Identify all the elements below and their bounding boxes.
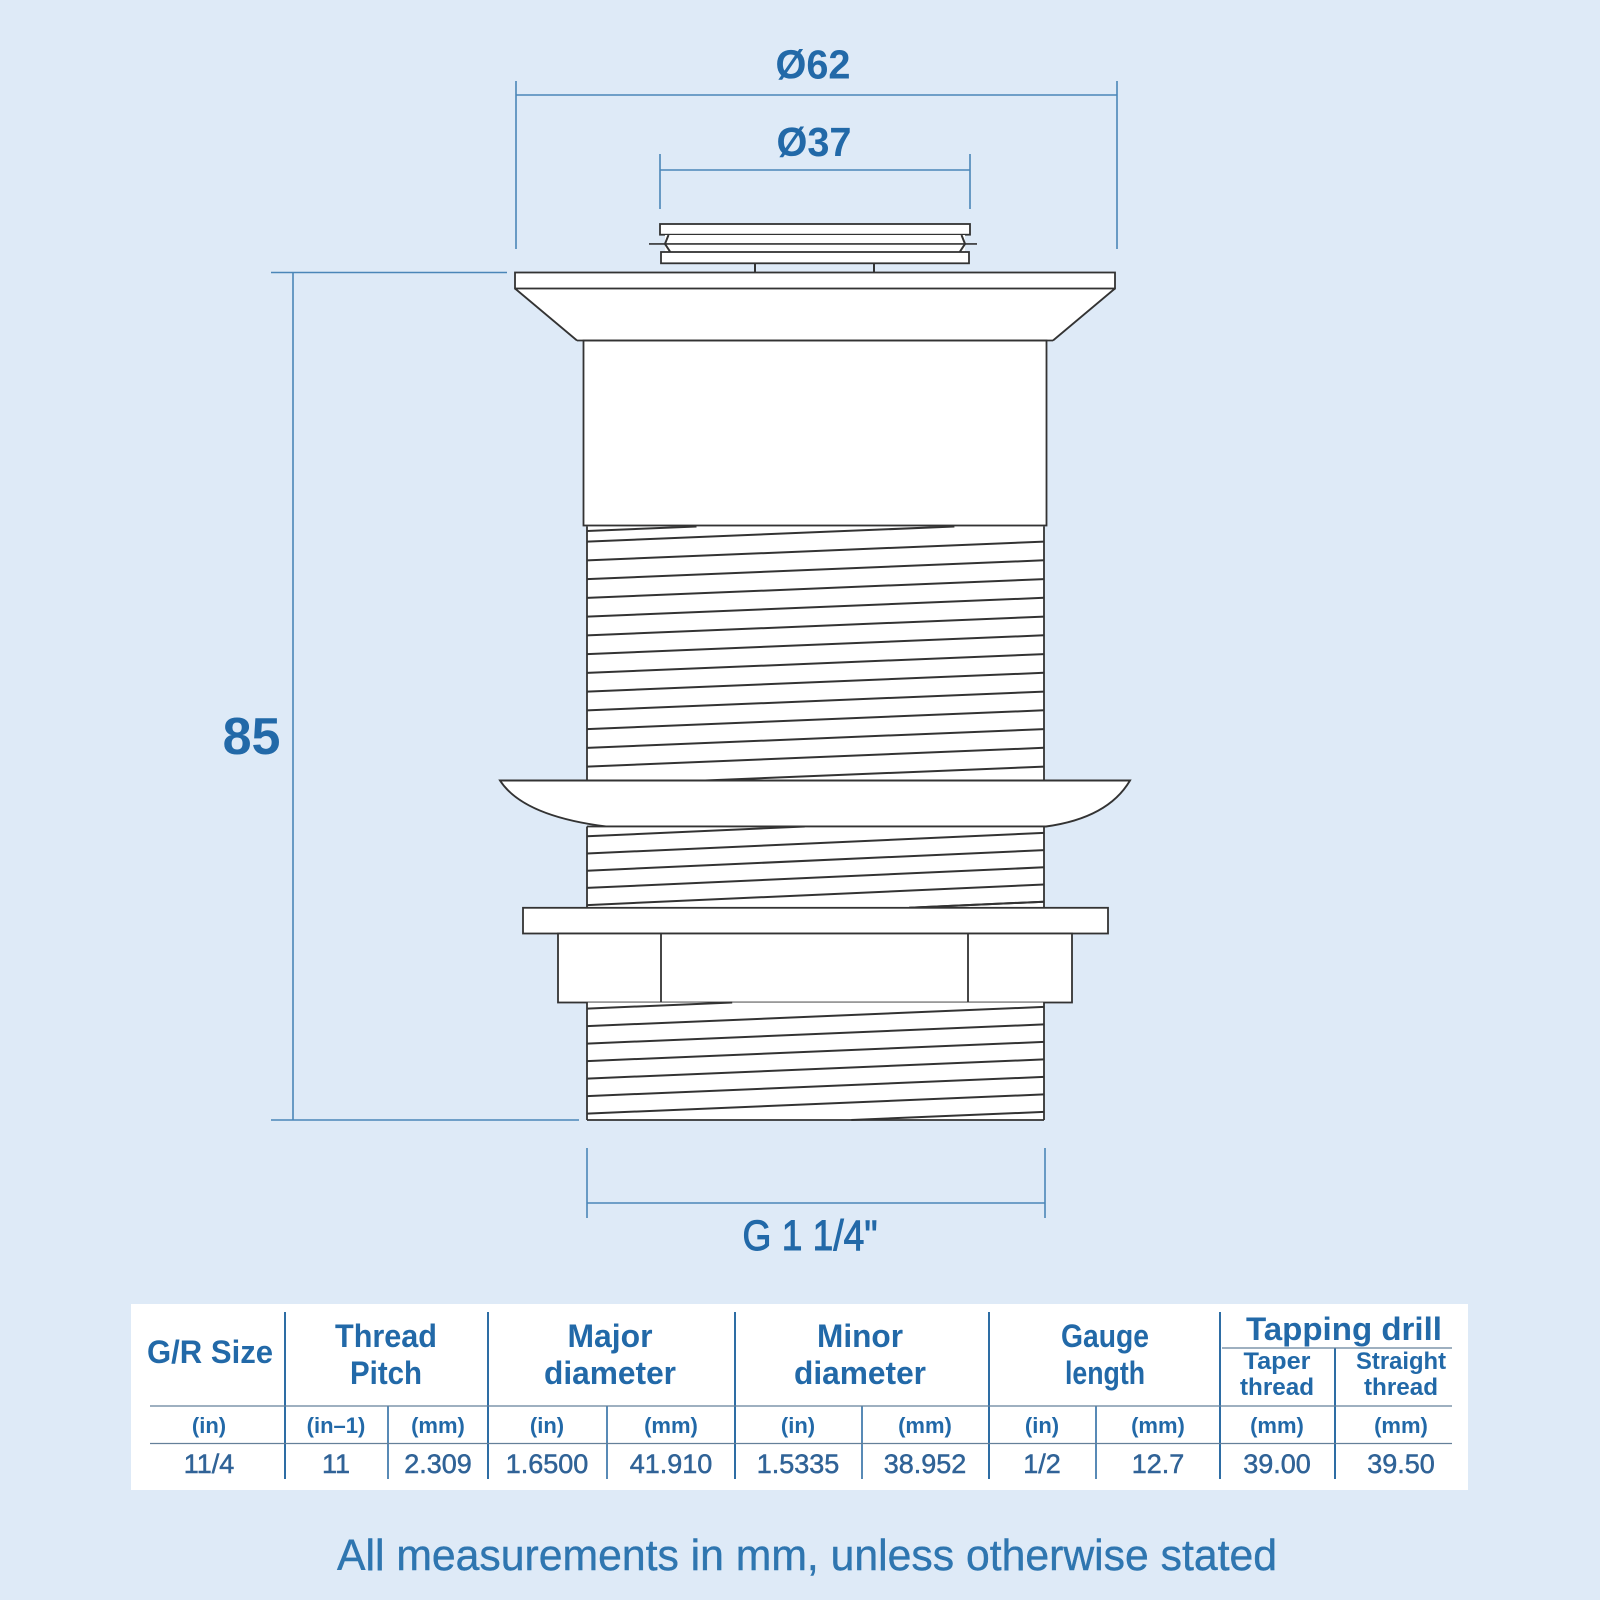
svg-text:39.00: 39.00 <box>1243 1449 1311 1479</box>
svg-text:38.952: 38.952 <box>884 1449 967 1479</box>
svg-text:Minor: Minor <box>817 1318 903 1354</box>
svg-text:Pitch: Pitch <box>350 1355 422 1391</box>
svg-text:(in): (in) <box>192 1413 226 1438</box>
svg-text:41.910: 41.910 <box>630 1449 713 1479</box>
svg-text:thread: thread <box>1364 1374 1438 1401</box>
svg-text:39.50: 39.50 <box>1367 1449 1435 1479</box>
svg-text:Thread: Thread <box>335 1318 437 1354</box>
svg-text:Ø37: Ø37 <box>777 119 852 165</box>
svg-text:(mm): (mm) <box>1374 1413 1428 1438</box>
svg-text:Ø62: Ø62 <box>776 41 851 87</box>
svg-text:1.6500: 1.6500 <box>506 1449 589 1479</box>
svg-text:(in–1): (in–1) <box>307 1413 366 1438</box>
svg-text:G/R Size: G/R Size <box>147 1334 273 1370</box>
svg-text:(mm): (mm) <box>411 1413 465 1438</box>
svg-text:12.7: 12.7 <box>1132 1449 1185 1479</box>
svg-text:(in): (in) <box>1025 1413 1059 1438</box>
svg-text:All measurements in mm, unless: All measurements in mm, unless otherwise… <box>337 1531 1277 1580</box>
svg-text:11/4: 11/4 <box>184 1449 235 1479</box>
svg-text:1.5335: 1.5335 <box>757 1449 840 1479</box>
svg-text:1/2: 1/2 <box>1023 1449 1061 1479</box>
svg-text:Major: Major <box>568 1318 653 1354</box>
svg-text:Straight: Straight <box>1356 1348 1446 1375</box>
svg-text:(in): (in) <box>530 1413 564 1438</box>
svg-text:11: 11 <box>322 1449 350 1479</box>
svg-text:85: 85 <box>223 708 281 766</box>
svg-text:(mm): (mm) <box>1131 1413 1185 1438</box>
svg-text:diameter: diameter <box>544 1355 676 1391</box>
svg-text:length: length <box>1065 1355 1145 1391</box>
svg-text:(mm): (mm) <box>644 1413 698 1438</box>
svg-text:G 1 1/4": G 1 1/4" <box>743 1212 878 1260</box>
svg-text:(in): (in) <box>781 1413 815 1438</box>
svg-text:Taper: Taper <box>1244 1348 1311 1375</box>
svg-text:diameter: diameter <box>794 1355 926 1391</box>
svg-text:(mm): (mm) <box>898 1413 952 1438</box>
svg-text:Gauge: Gauge <box>1061 1318 1149 1354</box>
svg-text:2.309: 2.309 <box>404 1449 472 1479</box>
svg-text:thread: thread <box>1240 1374 1314 1401</box>
svg-text:Tapping drill: Tapping drill <box>1246 1311 1442 1347</box>
svg-text:(mm): (mm) <box>1250 1413 1304 1438</box>
